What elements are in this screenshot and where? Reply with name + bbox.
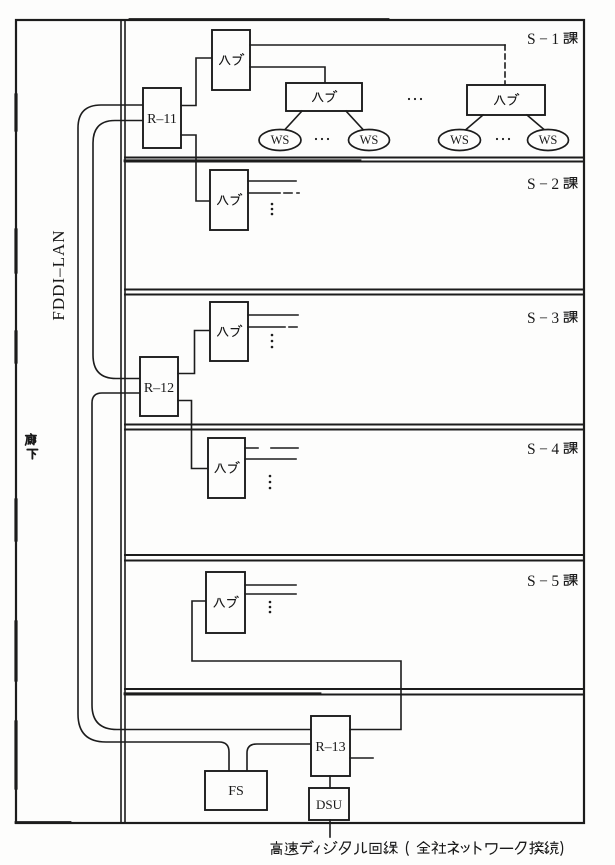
svg-text:WS: WS bbox=[450, 133, 469, 147]
svg-text:R–11: R–11 bbox=[147, 112, 177, 127]
svg-text:R–13: R–13 bbox=[315, 740, 345, 755]
svg-text:S−4: S−4 bbox=[527, 441, 563, 458]
svg-text:FDDI–LAN: FDDI–LAN bbox=[49, 229, 68, 320]
svg-text:FS: FS bbox=[228, 784, 244, 799]
svg-text:R–12: R–12 bbox=[144, 381, 174, 396]
svg-text:S−3: S−3 bbox=[527, 310, 563, 327]
svg-text:DSU: DSU bbox=[316, 797, 343, 812]
svg-text:WS: WS bbox=[539, 133, 558, 147]
svg-text:WS: WS bbox=[360, 133, 379, 147]
svg-text:S−2: S−2 bbox=[527, 176, 563, 193]
svg-text:S−1: S−1 bbox=[527, 31, 563, 48]
svg-text:S−5: S−5 bbox=[527, 573, 563, 590]
svg-text:WS: WS bbox=[271, 133, 290, 147]
